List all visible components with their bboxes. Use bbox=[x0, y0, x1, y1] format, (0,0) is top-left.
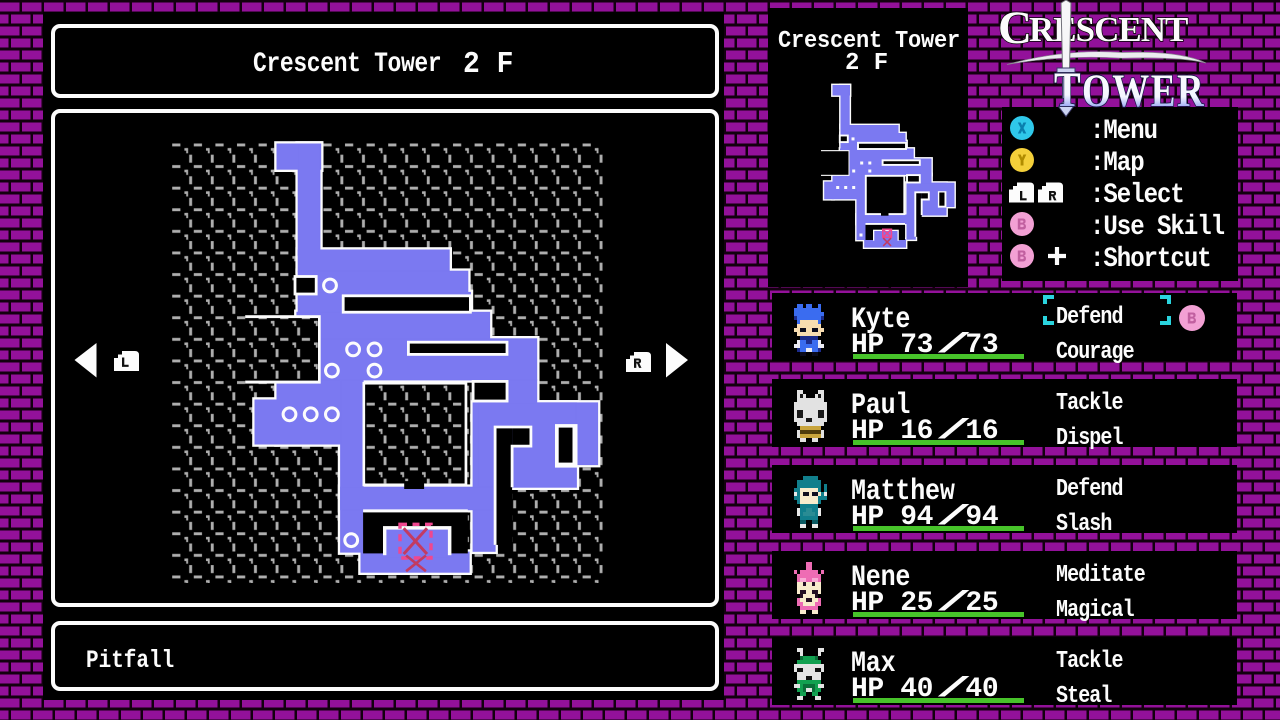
svg-text:RESCENT: RESCENT bbox=[1029, 10, 1188, 49]
svg-text:C: C bbox=[998, 2, 1032, 54]
